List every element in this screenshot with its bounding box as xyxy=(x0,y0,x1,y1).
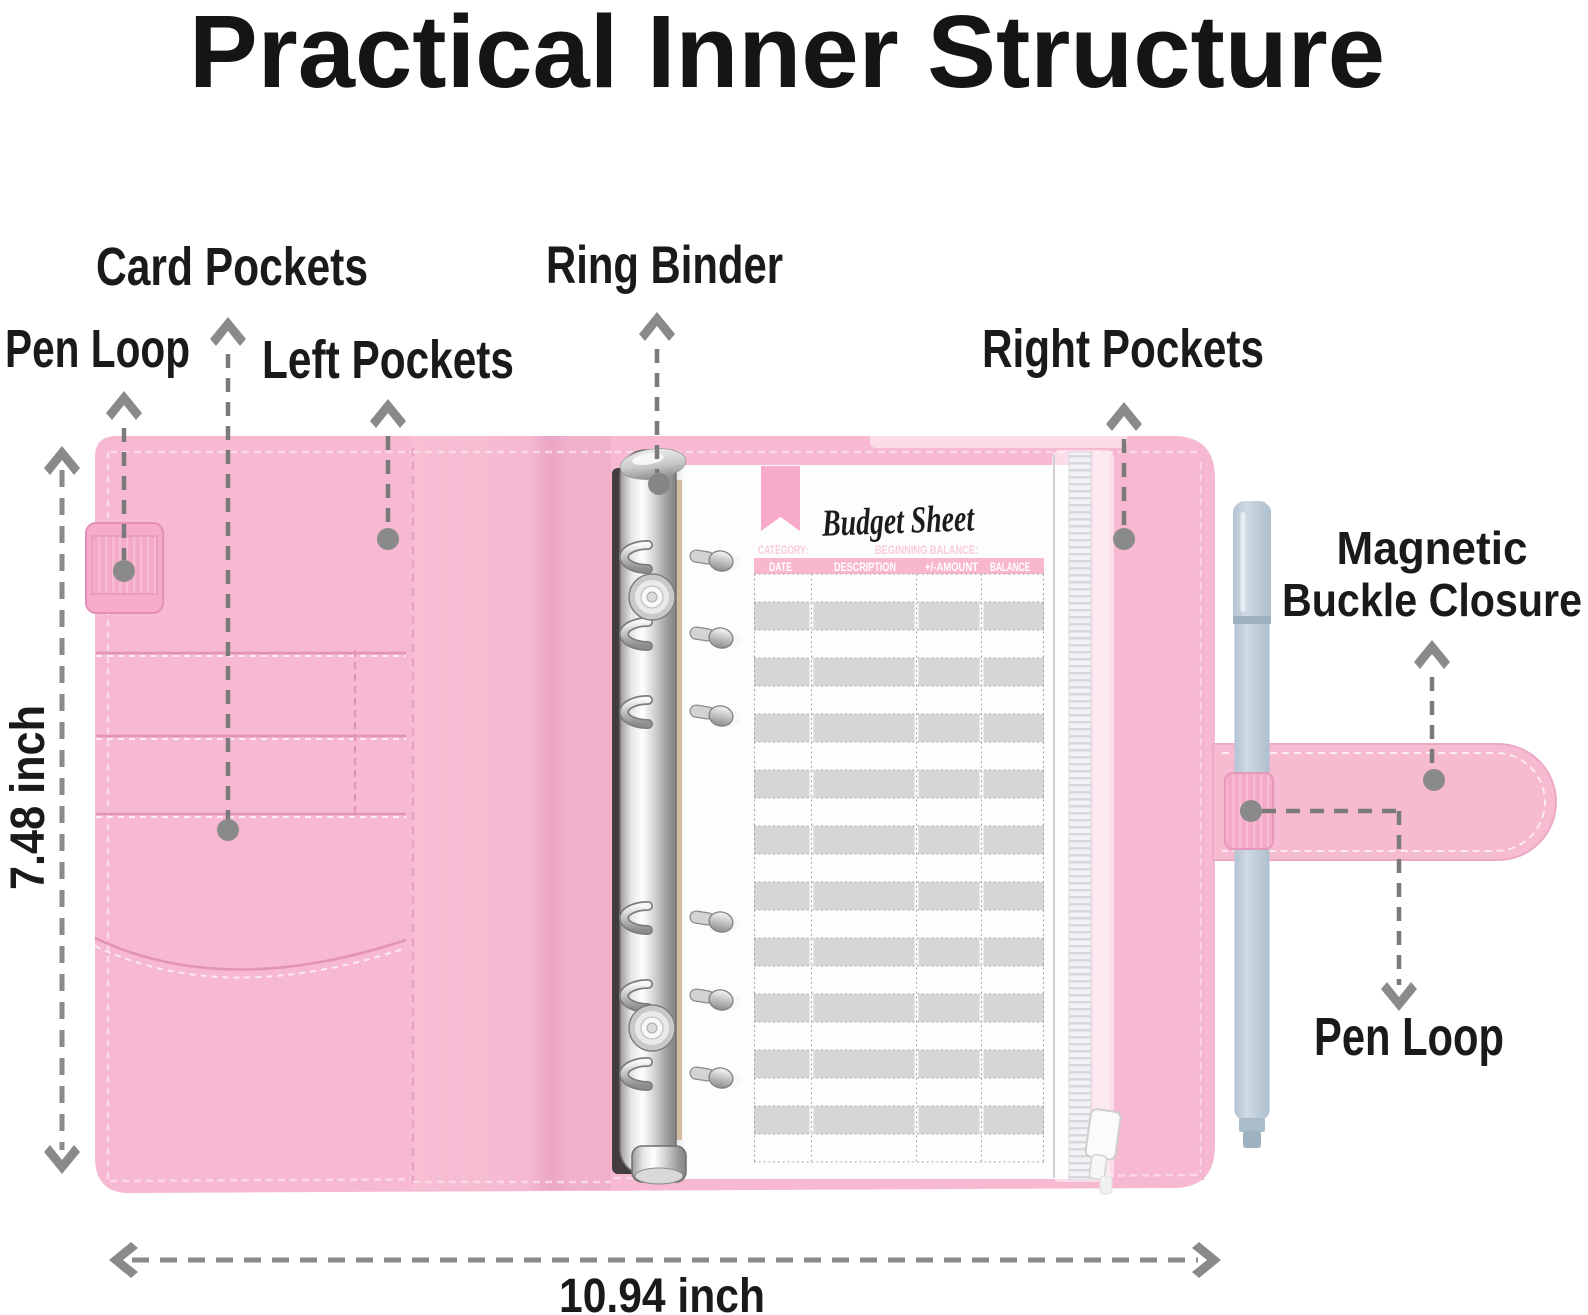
svg-text:Budget Sheet: Budget Sheet xyxy=(821,497,976,544)
svg-text:Card Pockets: Card Pockets xyxy=(96,237,368,297)
svg-text:Pen Loop: Pen Loop xyxy=(5,319,190,379)
svg-text:+/-AMOUNT: +/-AMOUNT xyxy=(925,560,979,574)
svg-text:Right Pockets: Right Pockets xyxy=(982,319,1264,379)
svg-text:Ring Binder: Ring Binder xyxy=(546,236,783,295)
svg-text:BALANCE: BALANCE xyxy=(990,560,1030,574)
svg-text:DATE: DATE xyxy=(769,560,792,574)
svg-text:Pen Loop: Pen Loop xyxy=(1314,1007,1504,1067)
svg-text:DESCRIPTION: DESCRIPTION xyxy=(834,560,896,574)
svg-text:Left Pockets: Left Pockets xyxy=(262,330,514,390)
svg-text:Practical Inner Structure: Practical Inner Structure xyxy=(189,0,1385,109)
svg-text:CATEGORY:: CATEGORY: xyxy=(758,545,808,557)
svg-text:10.94 inch: 10.94 inch xyxy=(559,1270,765,1315)
svg-text:Magnetic: Magnetic xyxy=(1337,522,1528,574)
svg-text:7.48 inch: 7.48 inch xyxy=(2,705,55,890)
svg-text:Buckle Closure: Buckle Closure xyxy=(1282,574,1582,626)
svg-text:BEGINNING BALANCE:: BEGINNING BALANCE: xyxy=(875,545,978,557)
